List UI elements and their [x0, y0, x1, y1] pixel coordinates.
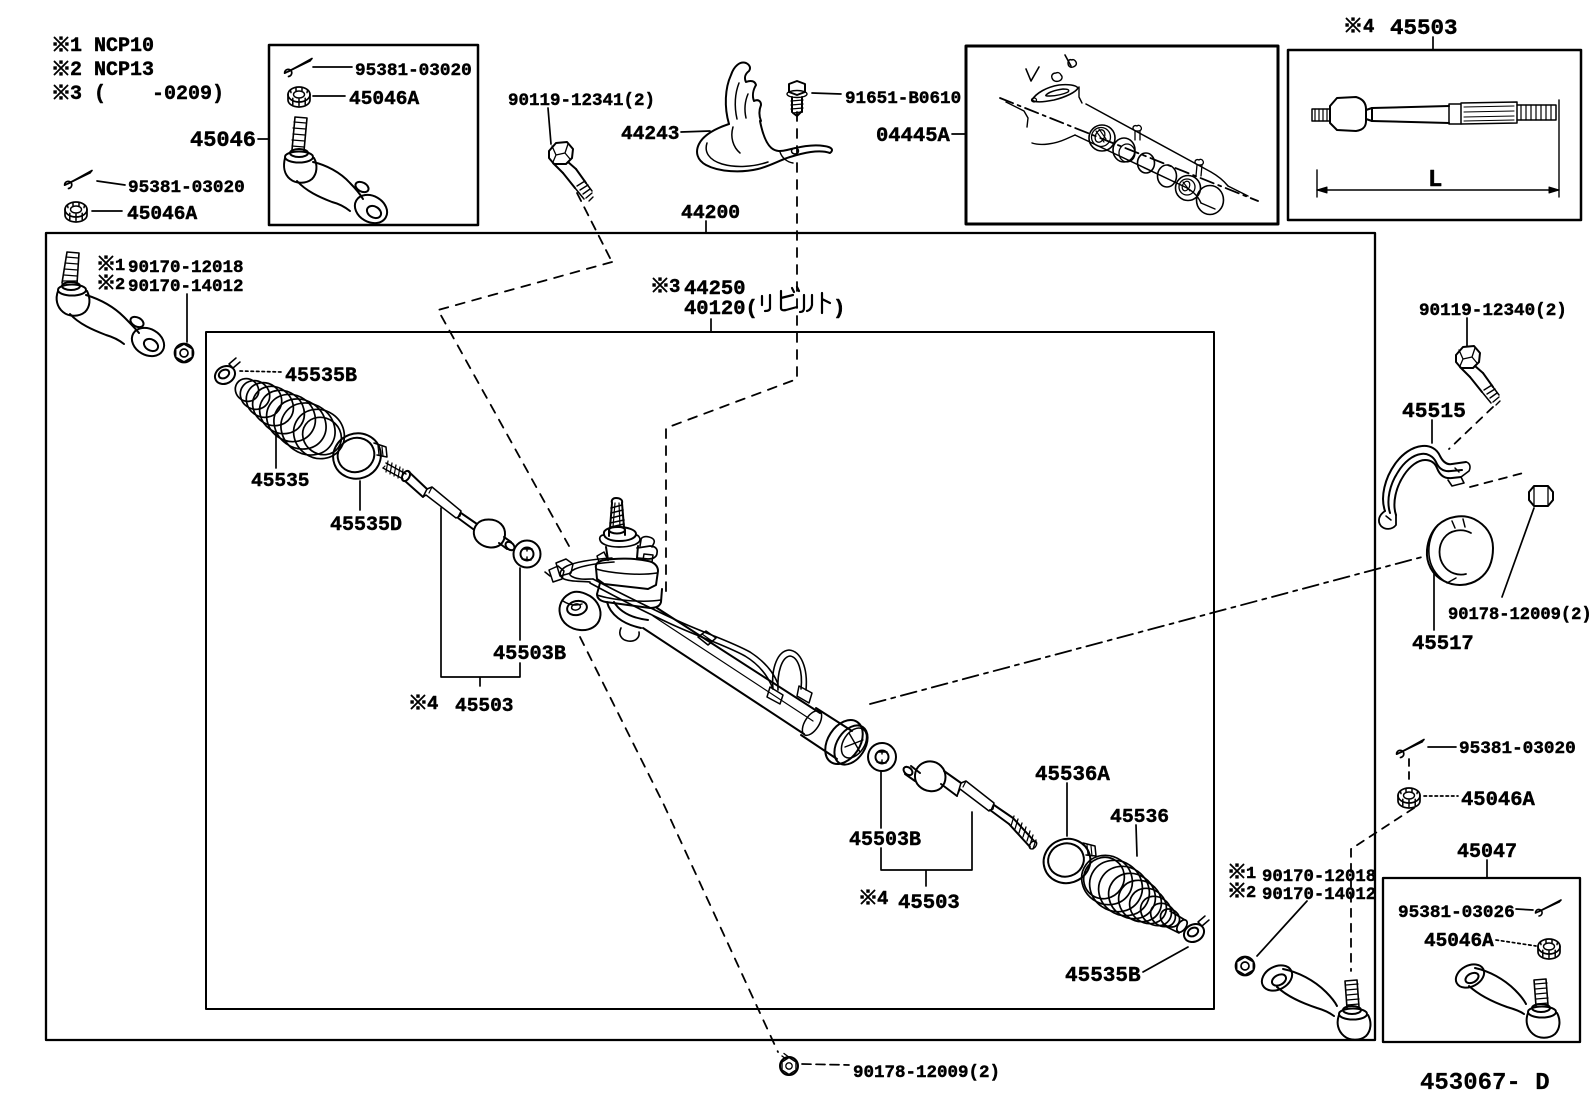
svg-text:45503B: 45503B	[493, 643, 566, 666]
svg-text:44200: 44200	[681, 202, 740, 224]
svg-text:L: L	[1428, 167, 1442, 194]
svg-text:45535B: 45535B	[1065, 965, 1141, 988]
svg-text:NCP10: NCP10	[94, 35, 154, 58]
svg-text:45046A: 45046A	[1424, 930, 1494, 952]
svg-text:04445A: 04445A	[876, 125, 951, 148]
svg-text:4: 4	[1363, 16, 1374, 38]
svg-text:45503: 45503	[898, 892, 960, 915]
svg-text:NCP13: NCP13	[94, 59, 154, 82]
svg-text:95381-03020: 95381-03020	[355, 61, 472, 81]
svg-text:): )	[833, 298, 845, 321]
svg-text:90170-12018: 90170-12018	[128, 258, 244, 278]
svg-text:2: 2	[1246, 884, 1256, 903]
svg-text:2: 2	[115, 276, 125, 295]
svg-text:45046A: 45046A	[1461, 789, 1536, 812]
svg-text:-0209): -0209)	[152, 83, 224, 106]
svg-text:45046A: 45046A	[127, 203, 198, 225]
svg-text:44243: 44243	[621, 123, 680, 145]
svg-text:3: 3	[70, 83, 82, 106]
svg-text:1: 1	[1246, 865, 1256, 884]
svg-text:1: 1	[70, 35, 82, 58]
svg-text:90170-12018: 90170-12018	[1262, 868, 1376, 887]
svg-text:91651-B0610: 91651-B0610	[845, 89, 961, 109]
svg-text:4: 4	[877, 888, 888, 910]
svg-text:90178-12009(2): 90178-12009(2)	[853, 1063, 1000, 1083]
svg-text:45535D: 45535D	[330, 514, 402, 537]
svg-text:45046: 45046	[190, 128, 256, 153]
svg-text:1: 1	[115, 257, 125, 276]
svg-text:3: 3	[669, 276, 680, 298]
svg-text:90119-12340(2): 90119-12340(2)	[1419, 301, 1567, 321]
svg-text:45503B: 45503B	[849, 829, 921, 852]
svg-text:90170-14012: 90170-14012	[128, 277, 244, 297]
svg-text:45503: 45503	[455, 695, 514, 717]
svg-text:2: 2	[70, 59, 82, 82]
svg-text:453067- D: 453067- D	[1420, 1070, 1550, 1097]
svg-text:45535: 45535	[251, 470, 310, 492]
svg-text:45503: 45503	[1390, 15, 1458, 41]
svg-text:90170-14012: 90170-14012	[1262, 886, 1376, 905]
svg-text:45535B: 45535B	[285, 365, 357, 388]
svg-text:90119-12341(2): 90119-12341(2)	[508, 91, 655, 111]
svg-text:45536A: 45536A	[1035, 764, 1110, 787]
svg-text:(: (	[94, 83, 106, 106]
svg-text:95381-03026: 95381-03026	[1398, 903, 1515, 923]
svg-text:90178-12009(2): 90178-12009(2)	[1448, 606, 1592, 625]
svg-text:45046A: 45046A	[349, 88, 420, 110]
svg-text:4: 4	[427, 693, 438, 715]
svg-text:45517: 45517	[1412, 633, 1474, 656]
svg-text:40120(: 40120(	[684, 298, 758, 321]
svg-text:95381-03020: 95381-03020	[1459, 739, 1576, 759]
svg-text:45536: 45536	[1110, 806, 1169, 828]
svg-text:95381-03020: 95381-03020	[128, 178, 245, 198]
svg-text:45515: 45515	[1402, 400, 1466, 424]
